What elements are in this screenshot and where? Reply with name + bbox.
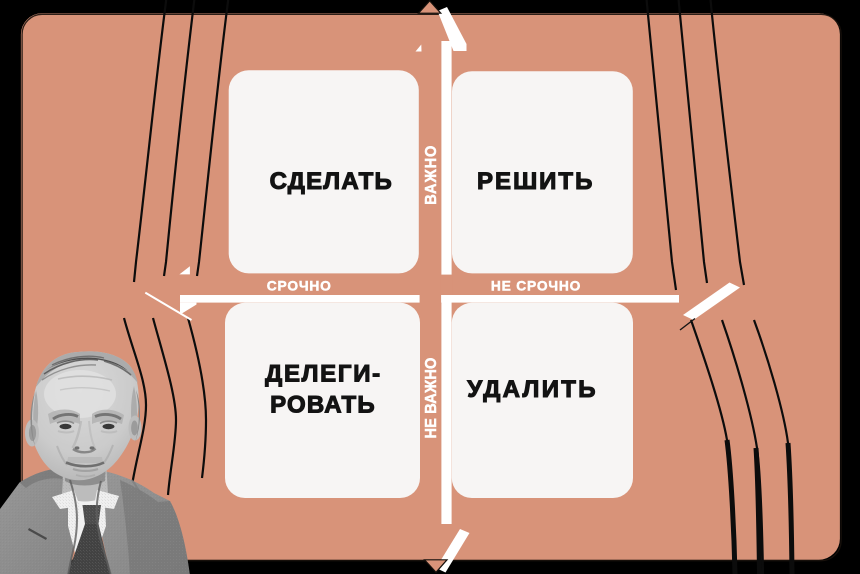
svg-text:РЕШИТЬ: РЕШИТЬ xyxy=(477,168,594,195)
svg-text:НЕ СРОЧНО: НЕ СРОЧНО xyxy=(491,278,581,293)
svg-text:НЕ ВАЖНО: НЕ ВАЖНО xyxy=(423,357,441,438)
svg-text:ВАЖНО: ВАЖНО xyxy=(423,145,441,205)
svg-text:РОВАТЬ: РОВАТЬ xyxy=(270,391,376,418)
svg-text:СРОЧНО: СРОЧНО xyxy=(267,278,332,293)
svg-text:УДАЛИТЬ: УДАЛИТЬ xyxy=(467,376,598,403)
svg-text:СДЕЛАТЬ: СДЕЛАТЬ xyxy=(270,168,393,195)
svg-text:ДЕЛЕГИ-: ДЕЛЕГИ- xyxy=(265,360,382,387)
